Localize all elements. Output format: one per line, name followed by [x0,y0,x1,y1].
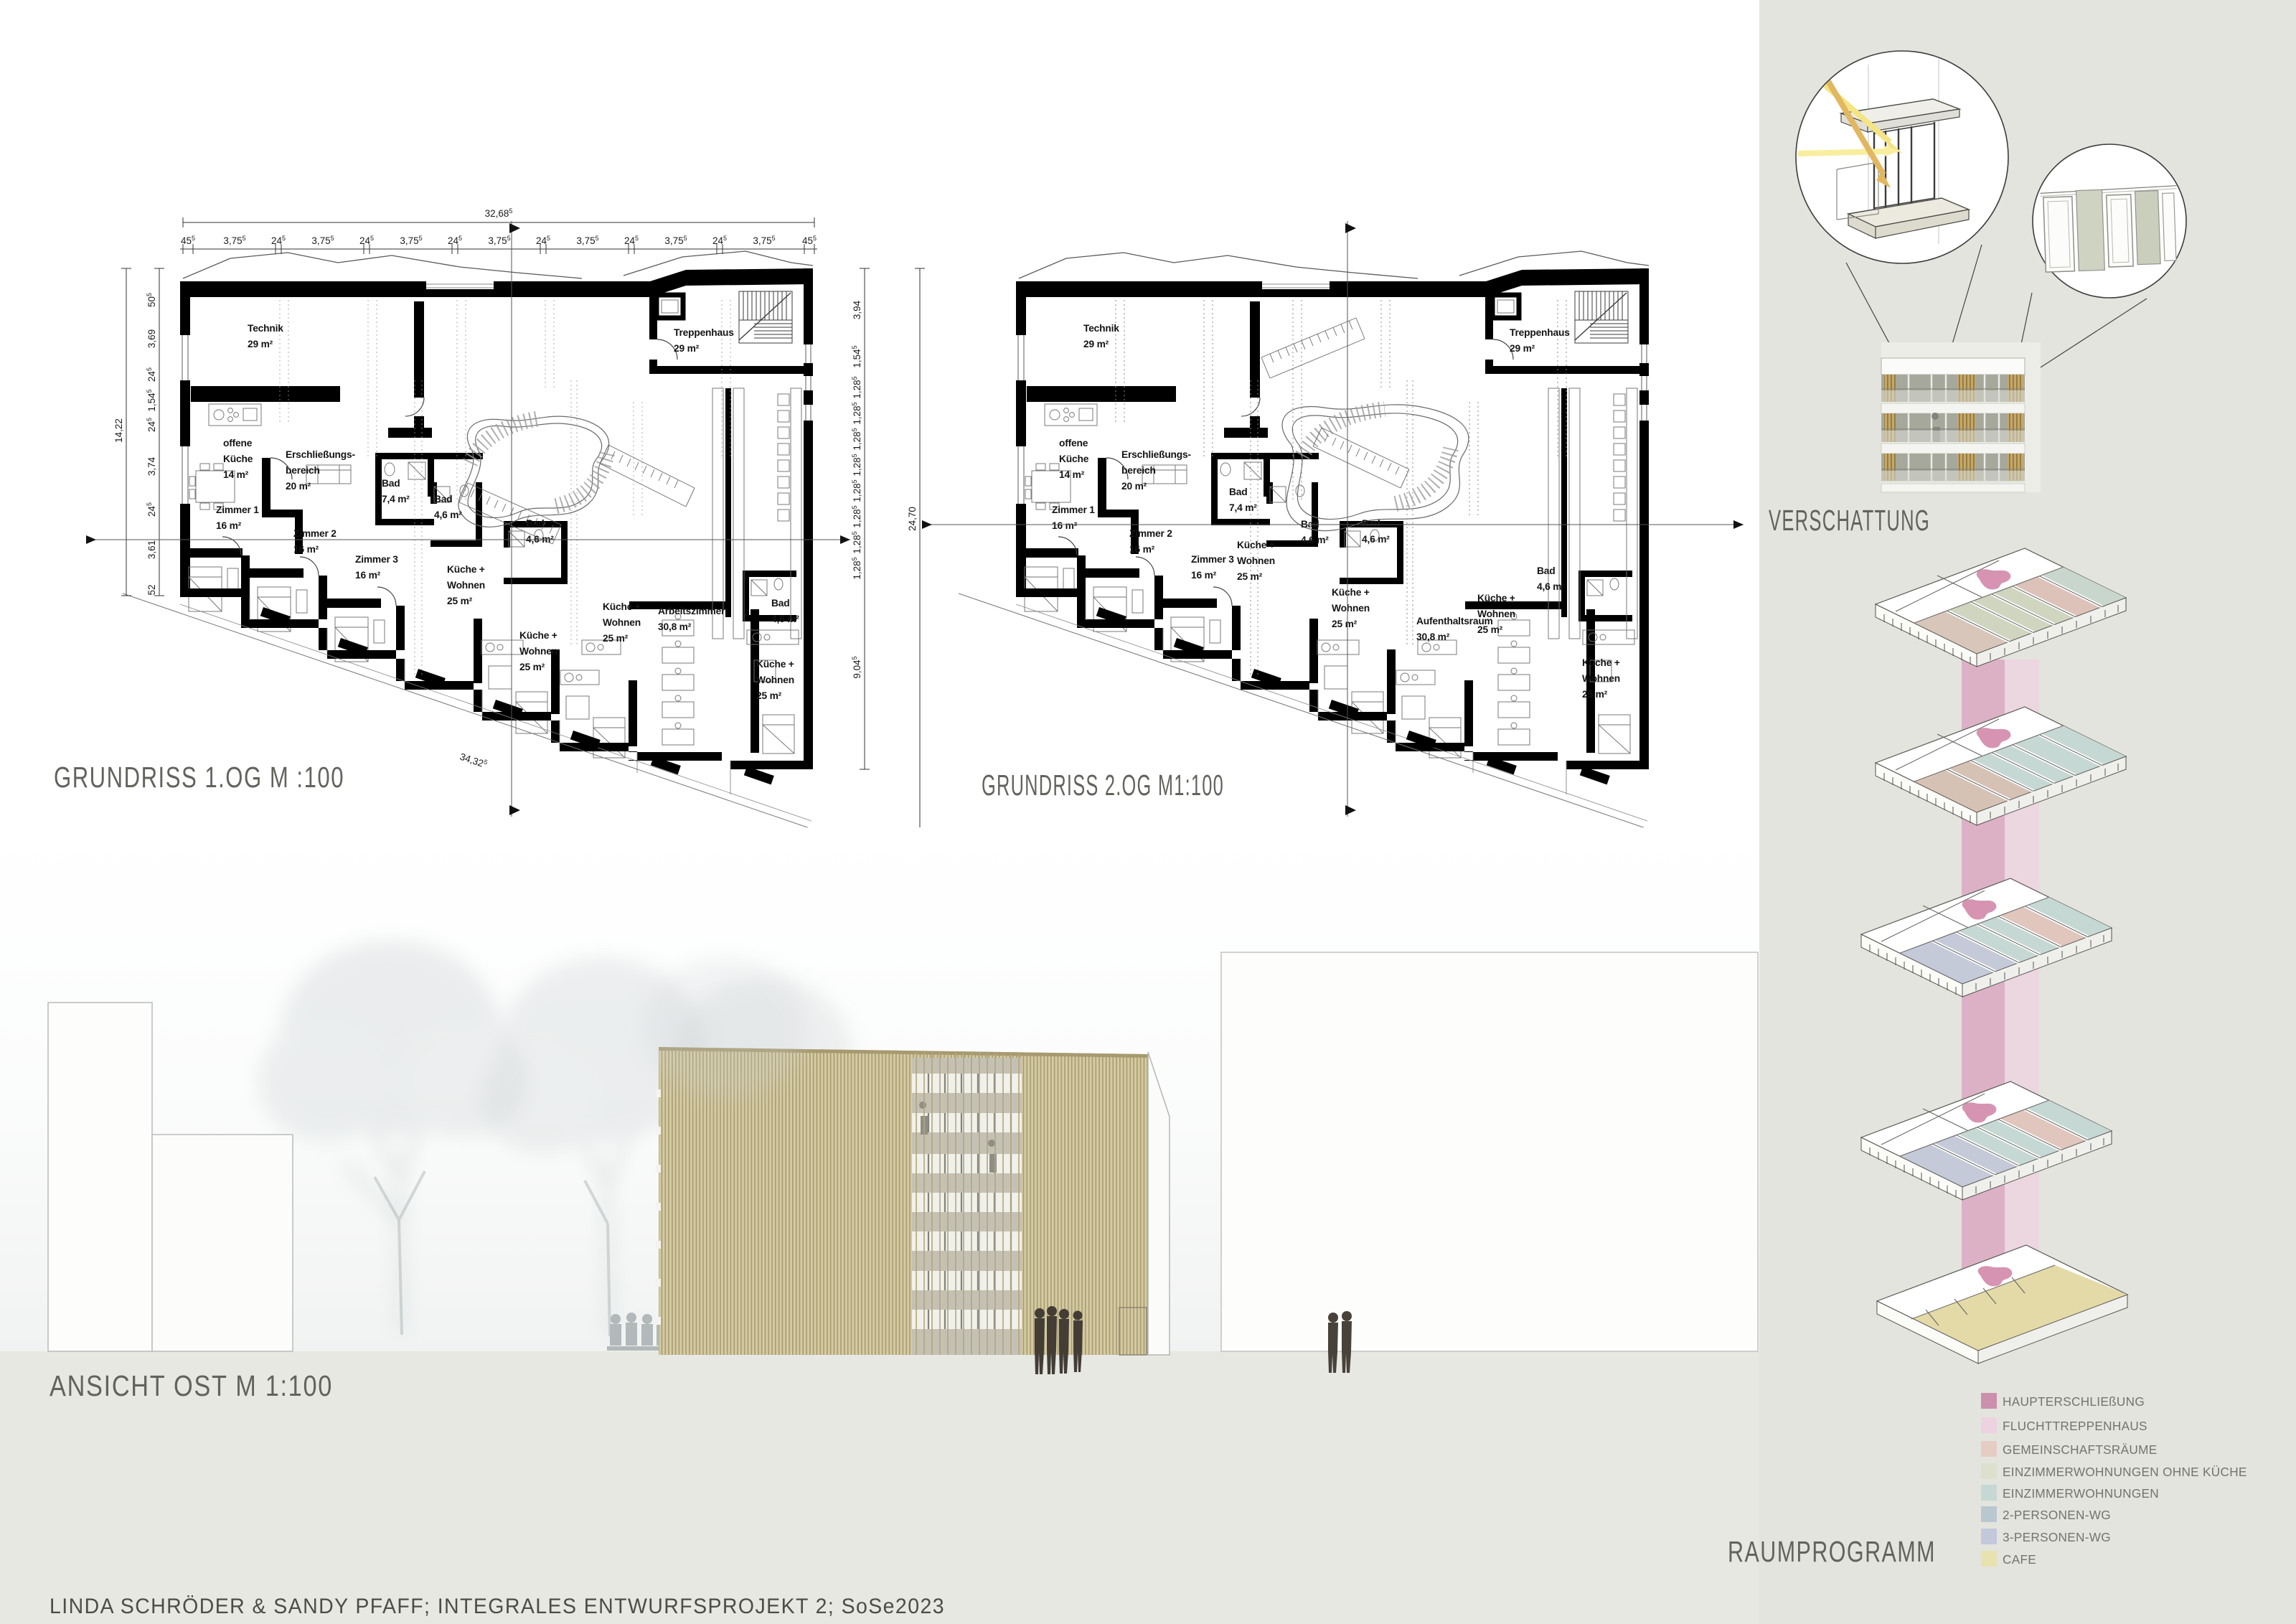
svg-text:offene: offene [223,438,253,449]
svg-text:16 m²: 16 m² [293,544,319,555]
svg-text:Küche +: Küche + [756,659,794,670]
svg-text:14 m²: 14 m² [1059,469,1085,480]
svg-text:Bad: Bad [1537,565,1555,576]
svg-text:4,6 m²: 4,6 m² [434,510,462,520]
svg-text:Küche +: Küche + [447,564,485,575]
svg-text:7,4 m²: 7,4 m² [1229,502,1257,513]
svg-text:2-PERSONEN-WG: 2-PERSONEN-WG [2003,1508,2111,1522]
svg-text:EINZIMMERWOHNUNGEN OHNE KÜCHE: EINZIMMERWOHNUNGEN OHNE KÜCHE [2003,1465,2247,1479]
svg-text:Wohnen: Wohnen [1582,673,1620,684]
svg-text:Bad: Bad [526,518,544,529]
svg-text:CAFE: CAFE [2003,1552,2036,1567]
svg-text:Zimmer 2: Zimmer 2 [293,528,337,539]
svg-text:Erschließungs-: Erschließungs- [1121,449,1191,460]
svg-text:4,6 m²: 4,6 m² [1301,535,1329,545]
svg-text:20 m²: 20 m² [286,481,311,492]
svg-text:Technik: Technik [248,323,283,334]
svg-text:Küche: Küche [223,454,253,464]
svg-text:Zimmer 3: Zimmer 3 [1191,554,1234,565]
svg-text:Wohnen: Wohnen [447,580,485,591]
svg-text:3,69: 3,69 [146,329,157,348]
svg-text:14,22: 14,22 [113,418,124,443]
svg-text:24,70: 24,70 [907,507,918,531]
svg-text:14 m²: 14 m² [223,469,249,480]
svg-text:Küche +: Küche + [603,601,641,612]
svg-text:Zimmer 3: Zimmer 3 [355,554,398,565]
svg-text:Küche +: Küche + [519,630,557,641]
svg-text:bereich: bereich [1121,465,1156,476]
svg-text:4,6 m²: 4,6 m² [1362,534,1390,545]
svg-text:Technik: Technik [1083,323,1119,334]
svg-text:Erschließungs-: Erschließungs- [286,449,355,460]
svg-text:16 m²: 16 m² [1129,544,1155,555]
svg-text:ANSICHT OST M 1:100: ANSICHT OST M 1:100 [50,1369,333,1402]
svg-text:3-PERSONEN-WG: 3-PERSONEN-WG [2003,1530,2111,1544]
svg-text:Wohnen: Wohnen [1332,603,1370,614]
svg-text:20 m²: 20 m² [1121,481,1147,492]
svg-text:Bad: Bad [1229,487,1247,497]
svg-text:29 m²: 29 m² [1510,343,1535,354]
svg-text:7,4 m²: 7,4 m² [382,494,410,504]
svg-text:Küche +: Küche + [1477,593,1515,604]
svg-text:Wohnen: Wohnen [756,675,794,685]
svg-text:25 m²: 25 m² [1332,619,1358,629]
svg-text:Treppenhaus: Treppenhaus [1510,327,1570,338]
svg-text:25 m²: 25 m² [756,690,782,701]
svg-text:Küche +: Küche + [1582,657,1620,668]
svg-text:Treppenhaus: Treppenhaus [674,327,734,338]
svg-text:GRUNDRISS 1.OG M :100: GRUNDRISS 1.OG M :100 [54,761,344,794]
svg-text:16 m²: 16 m² [1191,570,1217,581]
svg-text:3,74: 3,74 [146,456,157,476]
svg-text:Wohnen: Wohnen [603,617,641,628]
svg-text:29 m²: 29 m² [1083,339,1109,349]
svg-text:25 m²: 25 m² [1582,689,1608,700]
svg-text:3,94: 3,94 [852,300,862,319]
svg-text:Wohnen: Wohnen [1237,555,1275,566]
svg-text:Wohnen: Wohnen [519,646,557,657]
svg-text:GRUNDRISS 2.OG M1:100: GRUNDRISS 2.OG M1:100 [982,769,1224,802]
svg-text:52: 52 [146,584,157,595]
svg-text:Bad: Bad [1362,518,1380,529]
svg-text:EINZIMMERWOHNUNGEN: EINZIMMERWOHNUNGEN [2003,1486,2159,1501]
svg-text:25 m²: 25 m² [447,596,473,606]
svg-text:Bad: Bad [382,478,400,489]
svg-text:Bad: Bad [771,598,789,609]
svg-text:VERSCHATTUNG: VERSCHATTUNG [1769,504,1930,537]
svg-text:HAUPTERSCHLIEßUNG: HAUPTERSCHLIEßUNG [2003,1394,2145,1409]
svg-text:32,685: 32,685 [485,207,513,219]
svg-text:3,61: 3,61 [146,540,157,559]
svg-text:30,8 m²: 30,8 m² [658,621,692,632]
svg-text:Zimmer 1: Zimmer 1 [216,504,259,515]
svg-text:offene: offene [1059,438,1088,449]
svg-text:16 m²: 16 m² [355,570,381,581]
svg-text:16 m²: 16 m² [216,520,242,531]
svg-text:4,6 m²: 4,6 m² [771,614,799,624]
svg-text:Zimmer 1: Zimmer 1 [1052,504,1095,515]
svg-text:Küche: Küche [1059,454,1089,464]
svg-text:25 m²: 25 m² [519,662,545,672]
svg-text:29 m²: 29 m² [248,339,273,349]
svg-text:Aufenthaltsraum: Aufenthaltsraum [1416,616,1493,626]
svg-text:25 m²: 25 m² [603,633,629,644]
svg-text:LINDA SCHRÖDER & SANDY PFAFF;: LINDA SCHRÖDER & SANDY PFAFF; INTEGRALES… [50,1595,945,1618]
svg-text:GEMEINSCHAFTSRÄUME: GEMEINSCHAFTSRÄUME [2003,1442,2158,1457]
svg-text:25 m²: 25 m² [1237,571,1263,582]
svg-text:4,6 m²: 4,6 m² [1537,581,1565,592]
svg-text:16 m²: 16 m² [1052,520,1078,531]
svg-text:Küche +: Küche + [1237,540,1275,550]
svg-text:30,8 m²: 30,8 m² [1416,632,1450,642]
svg-text:bereich: bereich [286,465,320,476]
svg-text:FLUCHTTREPPENHAUS: FLUCHTTREPPENHAUS [2003,1419,2147,1433]
svg-text:Bad: Bad [434,494,452,504]
svg-text:Zimmer 2: Zimmer 2 [1129,528,1172,539]
svg-text:RAUMPROGRAMM: RAUMPROGRAMM [1728,1535,1936,1568]
svg-text:29 m²: 29 m² [674,343,700,354]
svg-text:Küche +: Küche + [1332,587,1370,598]
svg-text:Arbeitszimmer: Arbeitszimmer [658,606,725,616]
